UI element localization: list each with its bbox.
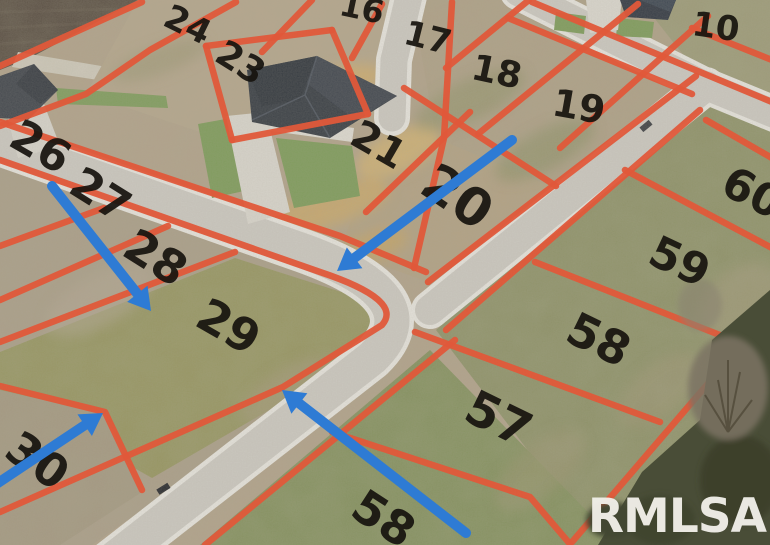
watermark-logo: RMLSA	[588, 489, 768, 544]
lot-number-10: 10	[690, 4, 742, 50]
aerial-photo: 24162317181910212026272829306059585758 R…	[0, 0, 770, 545]
subdivision-scene: 24162317181910212026272829306059585758 R…	[0, 0, 770, 545]
lot-number-19: 19	[549, 80, 609, 133]
